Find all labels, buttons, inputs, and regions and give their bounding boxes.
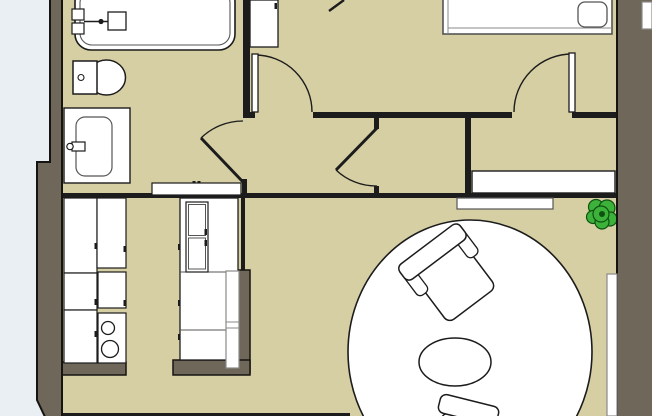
bedroom-door-left-leaf <box>252 54 258 112</box>
wall-closet-right <box>465 112 471 198</box>
cabinet-handle <box>178 244 181 250</box>
cabinet-handle <box>95 243 98 249</box>
wall-bedroom-right-seg <box>572 112 617 118</box>
plant-center <box>599 211 605 217</box>
tub-faucet-dot <box>98 19 103 24</box>
hall-cabinet-handle <box>193 181 196 184</box>
bathtub <box>75 0 235 50</box>
sink-faucet <box>72 142 85 151</box>
kitchen-cooktop-unit <box>98 313 126 363</box>
hall-cabinet <box>152 183 241 195</box>
wall-bedroom-mid-seg <box>313 112 512 118</box>
wall-bathroom-bedroom <box>243 0 250 117</box>
floor-plan <box>0 0 652 416</box>
kitchen-cabinet-left-3 <box>64 310 97 363</box>
kitchen-cabinet-left-2 <box>64 273 97 310</box>
cabinet-handle <box>124 246 127 252</box>
wall-kitchen-divider <box>241 198 245 272</box>
right-exterior-wall <box>617 0 652 416</box>
cabinet-handle <box>178 334 181 340</box>
wardrobe-handle <box>275 3 278 9</box>
fridge <box>186 202 208 272</box>
sink-faucet-knob <box>67 143 73 149</box>
cabinet-handle <box>95 331 98 337</box>
bed-pillow <box>578 2 607 27</box>
kitchen-cabinet-right-1 <box>97 198 126 268</box>
hall-cabinet-handle <box>198 181 201 184</box>
wall-closet-stub-top <box>374 117 379 129</box>
tub-faucet-handle-bottom <box>72 23 84 34</box>
kitchen-cabinet-left-1 <box>64 198 97 273</box>
fridge-handle <box>205 240 208 246</box>
tub-spout <box>108 12 126 30</box>
kitchen-partition-stub <box>238 270 250 373</box>
kitchen-cabinet-right-2 <box>98 272 126 308</box>
sideboard <box>472 171 615 193</box>
cabinet-handle <box>124 300 127 306</box>
wall-bedroom-left-seg <box>243 112 255 118</box>
tub-faucet-handle-top <box>72 9 84 20</box>
kitchen-stub-left <box>62 362 126 375</box>
wall-closet-stub-bottom <box>374 186 379 194</box>
bedroom-corner-window <box>642 2 652 29</box>
living-room-window <box>607 274 617 416</box>
toilet-tank <box>73 61 97 94</box>
cabinet-handle <box>178 300 181 306</box>
coffee-table <box>419 338 491 386</box>
serving-hatch-window <box>226 271 239 368</box>
fridge-handle <box>205 229 208 235</box>
wardrobe <box>250 0 278 47</box>
console-shelf <box>457 198 553 209</box>
bedroom-door-right-leaf <box>569 53 575 112</box>
floor-plan-svg <box>0 0 652 416</box>
wall-main-horizontal <box>50 193 617 198</box>
toilet-flush-button <box>78 75 84 81</box>
cabinet-handle <box>95 299 98 305</box>
